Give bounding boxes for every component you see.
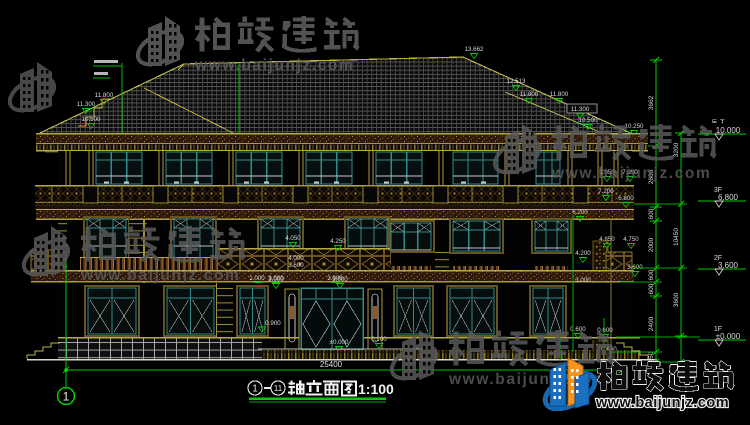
svg-text:11: 11 bbox=[274, 384, 283, 393]
svg-text:www.baijunjz.com: www.baijunjz.com bbox=[595, 395, 729, 411]
svg-text:3200: 3200 bbox=[673, 142, 680, 157]
svg-text:10.500: 10.500 bbox=[579, 117, 598, 124]
svg-text:10.500: 10.500 bbox=[82, 116, 101, 123]
svg-text:3.600: 3.600 bbox=[288, 262, 304, 269]
svg-text:1: 1 bbox=[63, 390, 70, 404]
svg-text:12.513: 12.513 bbox=[507, 78, 526, 85]
svg-text:3.000: 3.000 bbox=[268, 276, 284, 283]
svg-text:±0.000: ±0.000 bbox=[330, 339, 349, 346]
svg-text:2400: 2400 bbox=[648, 316, 655, 331]
svg-text:4.750: 4.750 bbox=[623, 236, 639, 243]
svg-text:3600: 3600 bbox=[673, 292, 680, 307]
svg-text:11.800: 11.800 bbox=[520, 91, 539, 98]
svg-text:600: 600 bbox=[648, 283, 655, 294]
svg-text:13.662: 13.662 bbox=[465, 46, 484, 53]
svg-text:4.850: 4.850 bbox=[599, 236, 615, 243]
svg-text:1.000: 1.000 bbox=[249, 275, 265, 282]
svg-text:4.200: 4.200 bbox=[575, 250, 591, 257]
svg-text:6.200: 6.200 bbox=[572, 209, 588, 216]
svg-text:10450: 10450 bbox=[673, 228, 680, 246]
svg-text:7.200: 7.200 bbox=[598, 188, 614, 195]
svg-text:25400: 25400 bbox=[320, 360, 343, 369]
svg-text:4.050: 4.050 bbox=[285, 235, 301, 242]
svg-text:3662: 3662 bbox=[648, 95, 655, 110]
svg-text:1:100: 1:100 bbox=[358, 381, 394, 397]
svg-text:450: 450 bbox=[648, 351, 655, 362]
svg-text:11.800: 11.800 bbox=[95, 92, 114, 99]
svg-text:4.250: 4.250 bbox=[330, 238, 346, 245]
svg-text:600: 600 bbox=[648, 269, 655, 280]
svg-text:3.000: 3.000 bbox=[332, 276, 348, 283]
svg-text:11.300: 11.300 bbox=[77, 101, 96, 108]
svg-text:600: 600 bbox=[648, 208, 655, 219]
svg-text:11.300: 11.300 bbox=[571, 106, 590, 113]
svg-text:1: 1 bbox=[252, 384, 258, 395]
svg-text:11.800: 11.800 bbox=[550, 91, 569, 98]
svg-text:3.600: 3.600 bbox=[627, 264, 643, 271]
svg-text:10.250: 10.250 bbox=[625, 123, 644, 130]
svg-text:www.baijunjz.com: www.baijunjz.com bbox=[194, 57, 354, 74]
svg-text:www.baijunjz.com: www.baijunjz.com bbox=[551, 165, 711, 182]
svg-text:2000: 2000 bbox=[648, 237, 655, 252]
svg-text:www.baijunjz.com: www.baijunjz.com bbox=[80, 267, 240, 284]
svg-text:0.900: 0.900 bbox=[265, 320, 281, 327]
svg-text:4.000: 4.000 bbox=[288, 255, 304, 262]
svg-text:6.800: 6.800 bbox=[618, 195, 634, 202]
svg-text:3.000: 3.000 bbox=[575, 277, 591, 284]
